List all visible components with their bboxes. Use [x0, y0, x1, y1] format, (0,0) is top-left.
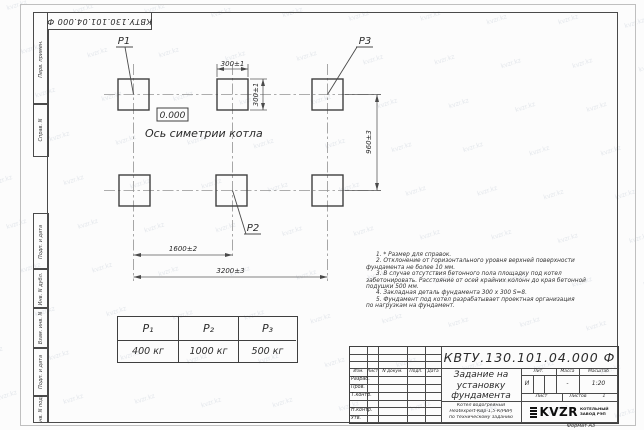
notes-block: 1. * Размер для справок. 2. Отклонение о…: [366, 252, 618, 310]
company-name: КОТЕЛЬНЫЙ ЗАВОД РЭП: [580, 407, 609, 417]
elevation-value: 0.000: [160, 111, 186, 121]
dim-row-spacing: 960±3: [365, 130, 373, 154]
doc-title-line: Задание на: [441, 370, 521, 381]
sign-row-utv: Утв.: [351, 415, 378, 423]
massa-header: Масса: [556, 368, 579, 375]
lit-header: Лит.: [521, 368, 556, 375]
drawing-sheet: kvzr.kz kvzr.kz Перв. примен. Справ. N П…: [0, 0, 644, 430]
masshtab-header: Масштаб: [579, 368, 618, 375]
listov-value: 1: [593, 393, 615, 401]
load-table-value-p1: 400 кг: [118, 341, 179, 362]
company-name-line: ЗАВОД РЭП: [580, 412, 609, 417]
col-header-ndokum: N докум.: [378, 368, 407, 376]
axis-caption: Ось симетрии котла: [145, 127, 263, 140]
grid-line: [407, 347, 408, 423]
dim-pad-width: 300±1: [221, 60, 245, 68]
load-table-value-p2: 1000 кг: [179, 341, 239, 362]
dim-total-width: 3200±3: [216, 267, 244, 275]
massa-value: -: [556, 375, 579, 393]
sign-row-nkontr: Н.контр.: [351, 407, 378, 415]
grid-line: [533, 375, 534, 393]
company-logo: KVZR КОТЕЛЬНЫЙ ЗАВОД РЭП: [522, 402, 617, 422]
grid-line: [544, 375, 545, 393]
sign-row-tkontr: Т.контр.: [351, 392, 378, 400]
load-table-value-p3: 500 кг: [239, 341, 296, 362]
listov-label: Листов: [563, 393, 593, 401]
sign-row-razrab: Разраб.: [351, 376, 378, 384]
doc-title-line: установку: [441, 381, 521, 392]
pad-load-label-p2: P2: [247, 223, 259, 234]
load-table: P₁ P₂ P₃ 400 кг 1000 кг 500 кг: [117, 316, 298, 363]
sign-row-empty: [351, 400, 378, 407]
col-header-data: Дата: [425, 368, 441, 376]
lit-value: И: [521, 375, 533, 393]
grid-line: [378, 347, 379, 423]
pad-load-label-p1: P1: [118, 36, 130, 47]
grid-line: [350, 361, 441, 362]
col-header-podp: Подп.: [407, 368, 425, 376]
dim-pad-height: 300±1: [252, 83, 260, 107]
logo-text: KVZR: [539, 405, 578, 419]
masshtab-value: 1:20: [579, 375, 618, 393]
product-line: по техническому заданию: [441, 415, 521, 421]
title-block: КВТУ.130.101.04.000 Ф Изм. Лист N докум.…: [349, 346, 619, 424]
centerlines: [104, 64, 381, 281]
format-label: Формат А3: [550, 422, 612, 430]
leader-p3: [328, 47, 374, 95]
load-table-header-p2: P₂: [179, 317, 239, 341]
pad-load-label-p3: P3: [359, 36, 371, 47]
load-table-header-p1: P₁: [118, 317, 179, 341]
load-table-header-p3: P₃: [239, 317, 296, 341]
doc-title-line: фундамента: [441, 391, 521, 402]
title-block-doc-number: КВТУ.130.101.04.000 Ф: [441, 347, 618, 368]
note-line: по нагрузкам на фундамент.: [366, 303, 618, 309]
col-header-izm: Изм.: [350, 368, 367, 376]
logo-bars-icon: [530, 407, 537, 418]
foundation-pads: [118, 79, 343, 206]
dim-col-spacing: 1600±2: [169, 245, 198, 253]
col-header-list: Лист: [367, 368, 378, 376]
list-label: Лист: [521, 393, 562, 401]
grid-line: [350, 354, 441, 355]
sign-row-prov: Пров.: [351, 384, 378, 392]
grid-line: [425, 347, 426, 423]
